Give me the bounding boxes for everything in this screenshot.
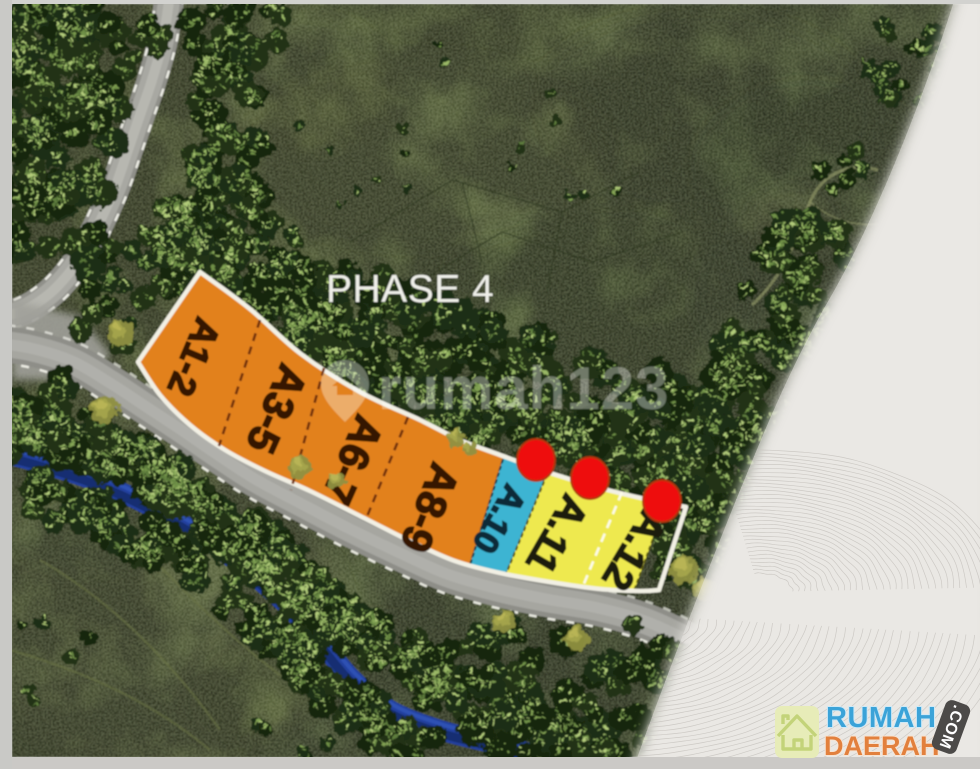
- svg-text:rumah123: rumah123: [378, 355, 669, 422]
- svg-text:RUMAH: RUMAH: [826, 702, 936, 734]
- svg-text:DAERAH: DAERAH: [824, 731, 940, 761]
- svg-text:PHASE 4: PHASE 4: [326, 268, 494, 311]
